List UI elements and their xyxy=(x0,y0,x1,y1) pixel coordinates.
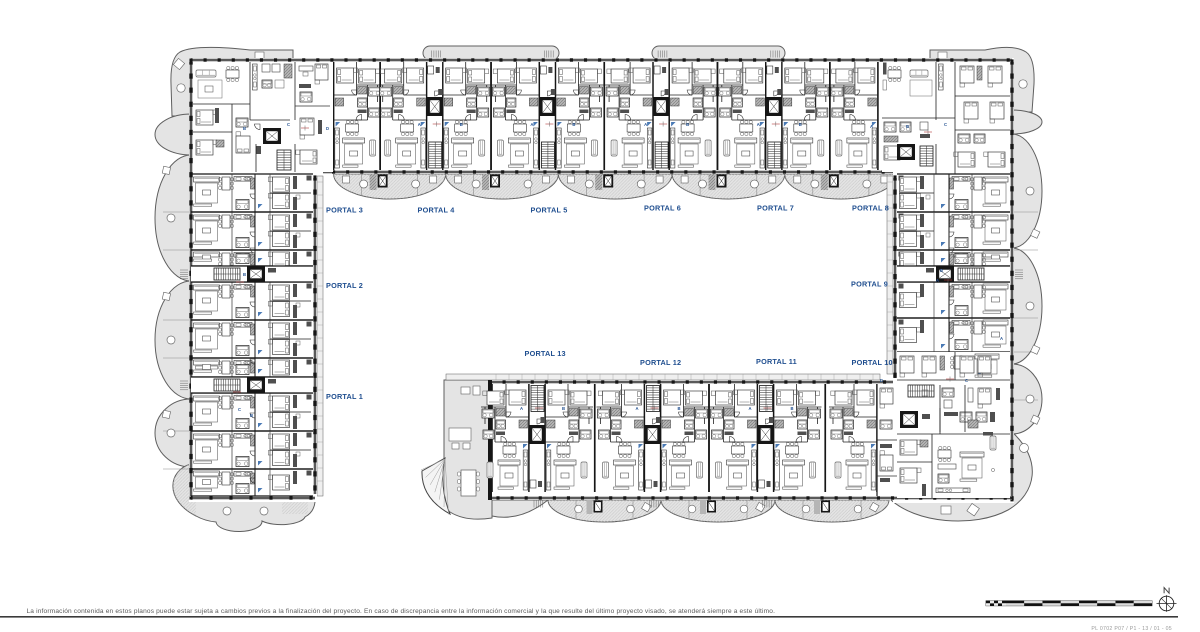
svg-text:B: B xyxy=(243,272,246,277)
svg-text:PORTAL 11: PORTAL 11 xyxy=(756,357,797,366)
svg-text:PORTAL 1: PORTAL 1 xyxy=(326,392,363,401)
svg-text:PORTAL 6: PORTAL 6 xyxy=(644,204,681,213)
svg-text:C: C xyxy=(965,378,968,383)
svg-text:PORTAL 9: PORTAL 9 xyxy=(851,280,888,289)
svg-text:B: B xyxy=(940,268,943,273)
svg-text:A: A xyxy=(520,406,523,411)
svg-text:PORTAL 2: PORTAL 2 xyxy=(326,281,363,290)
svg-text:PORTAL 3: PORTAL 3 xyxy=(326,206,363,215)
svg-text:B: B xyxy=(572,122,575,127)
svg-text:B: B xyxy=(678,406,681,411)
svg-text:A: A xyxy=(644,122,647,127)
svg-text:B: B xyxy=(250,413,253,418)
svg-text:C: C xyxy=(238,407,241,412)
svg-text:PORTAL 8: PORTAL 8 xyxy=(852,204,889,213)
svg-text:A: A xyxy=(757,122,760,127)
svg-text:A: A xyxy=(636,406,639,411)
svg-text:B: B xyxy=(243,126,246,131)
svg-text:B: B xyxy=(460,122,463,127)
svg-text:B: B xyxy=(906,124,909,129)
svg-text:A: A xyxy=(530,122,533,127)
svg-text:B: B xyxy=(562,406,565,411)
svg-text:A: A xyxy=(870,124,873,129)
svg-text:D: D xyxy=(326,126,329,131)
svg-text:A: A xyxy=(418,122,421,127)
svg-text:C: C xyxy=(287,122,290,127)
svg-text:A: A xyxy=(749,406,752,411)
svg-text:PORTAL 10: PORTAL 10 xyxy=(852,358,893,367)
svg-text:D: D xyxy=(880,378,883,383)
svg-text:PORTAL 4: PORTAL 4 xyxy=(418,206,456,215)
svg-text:A: A xyxy=(936,278,939,283)
svg-text:C: C xyxy=(944,122,947,127)
svg-text:PORTAL 13: PORTAL 13 xyxy=(525,349,566,358)
svg-text:PORTAL 12: PORTAL 12 xyxy=(640,358,681,367)
svg-text:A: A xyxy=(1000,336,1003,341)
svg-text:PORTAL 7: PORTAL 7 xyxy=(757,204,794,213)
svg-text:B: B xyxy=(799,122,802,127)
svg-text:PORTAL 5: PORTAL 5 xyxy=(531,206,568,215)
svg-text:La información contenida en es: La información contenida en estos planos… xyxy=(27,608,776,615)
svg-text:PL 0702 P07 / P1 - 13 / 01 - 0: PL 0702 P07 / P1 - 13 / 01 - 05 xyxy=(1091,626,1172,632)
svg-text:B: B xyxy=(686,122,689,127)
svg-text:B: B xyxy=(791,406,794,411)
